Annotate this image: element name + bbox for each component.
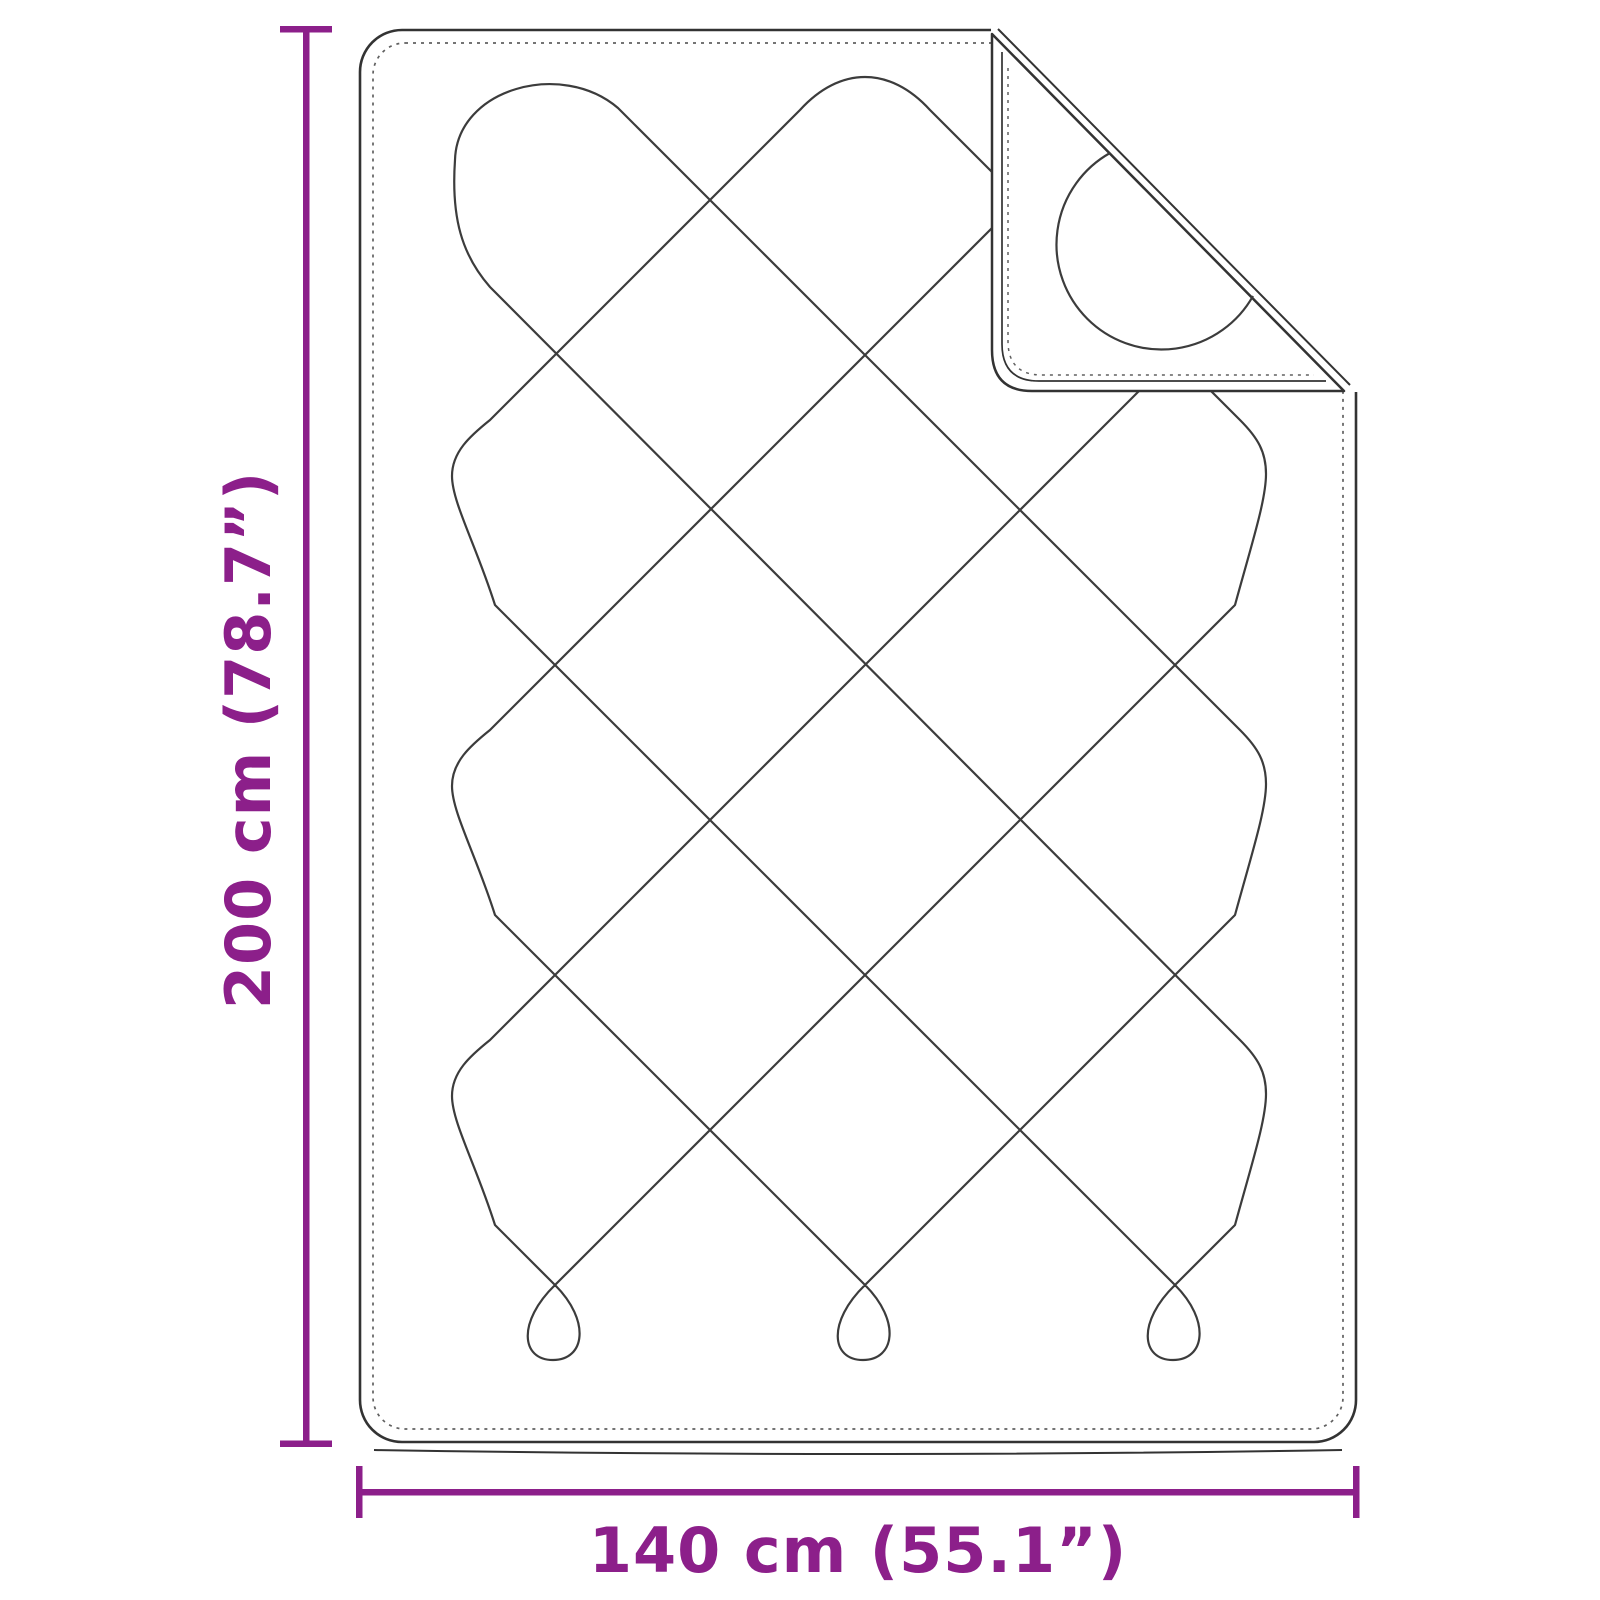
fold-flap xyxy=(992,34,1344,391)
page: 200 cm (78.7”) 140 cm (55.1”) xyxy=(0,0,1600,1600)
blanket-dimension-diagram: 200 cm (78.7”) 140 cm (55.1”) xyxy=(0,0,1600,1600)
vertical-dimension: 200 cm (78.7”) xyxy=(212,26,332,1447)
vertical-dimension-line xyxy=(303,26,310,1447)
height-label: 200 cm (78.7”) xyxy=(212,471,285,1009)
horizontal-dimension: 140 cm (55.1”) xyxy=(356,1466,1360,1587)
width-label: 140 cm (55.1”) xyxy=(589,1514,1127,1587)
vertical-dimension-bottom-cap xyxy=(280,1441,332,1448)
horizontal-dimension-right-cap xyxy=(1353,1466,1360,1518)
horizontal-dimension-line xyxy=(356,1489,1360,1496)
fold-corner xyxy=(992,29,1350,391)
vertical-dimension-top-cap xyxy=(280,26,332,33)
blanket-body xyxy=(360,30,1356,1454)
horizontal-dimension-left-cap xyxy=(356,1466,363,1518)
blanket-outline xyxy=(360,30,1356,1442)
blanket-bottom-thickness-line xyxy=(374,1450,1342,1454)
